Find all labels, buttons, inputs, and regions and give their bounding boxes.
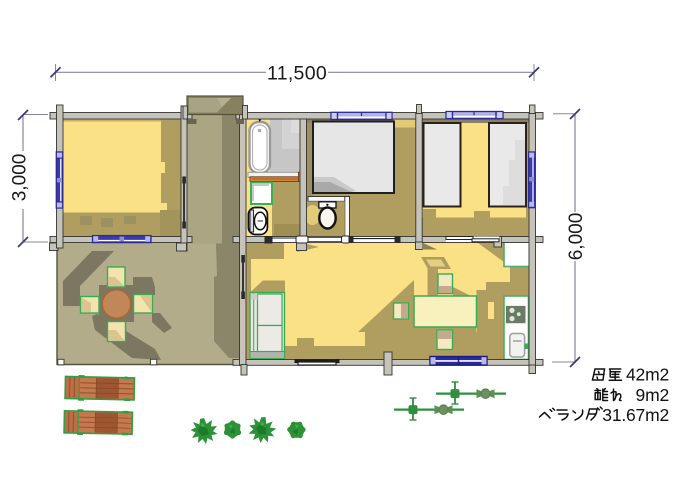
svg-text:6,000: 6,000 (566, 213, 587, 261)
svg-text:31.67m2: 31.67m2 (602, 405, 669, 425)
svg-text:9m2: 9m2 (636, 385, 669, 405)
svg-text:42m2: 42m2 (626, 365, 669, 385)
svg-text:11,500: 11,500 (267, 63, 327, 85)
svg-text:3,000: 3,000 (10, 154, 31, 202)
